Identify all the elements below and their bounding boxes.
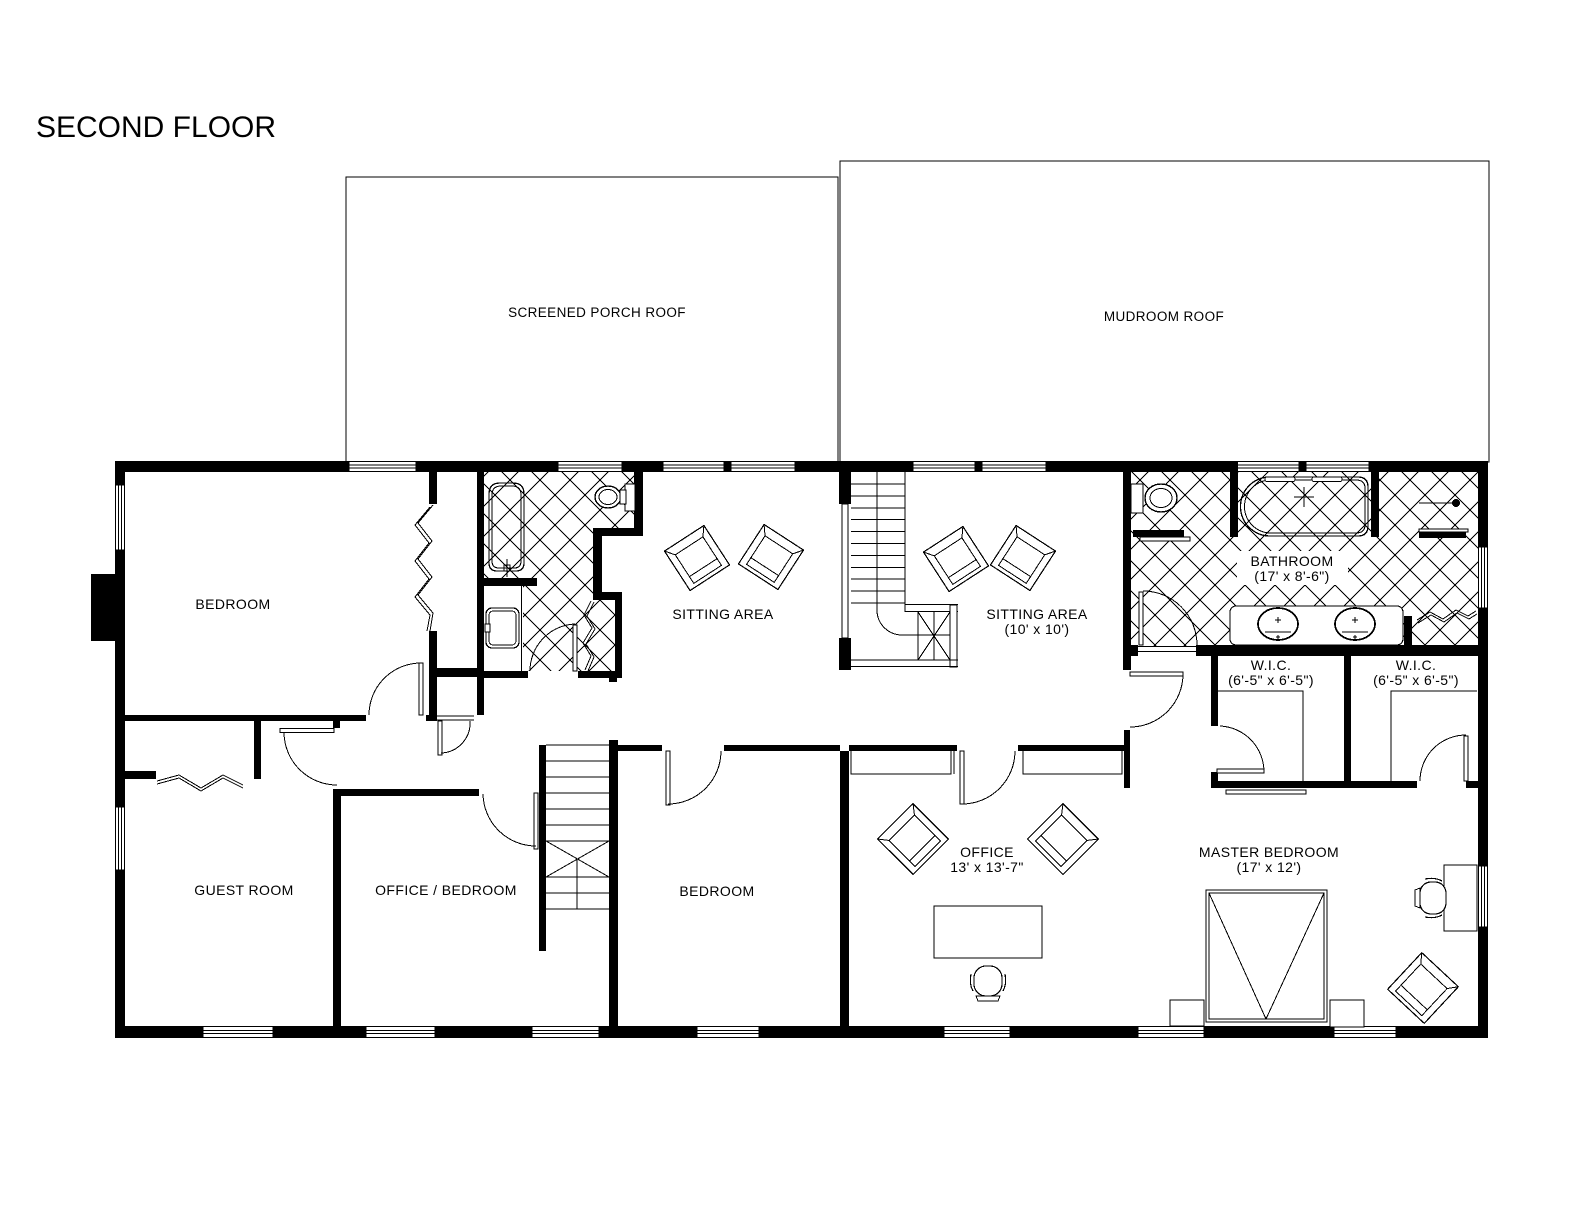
svg-text:SECOND FLOOR: SECOND FLOOR <box>36 111 276 144</box>
svg-text:(6'-5" x 6'-5"): (6'-5" x 6'-5") <box>1373 672 1459 688</box>
svg-text:13' x 13'-7": 13' x 13'-7" <box>950 859 1024 875</box>
svg-text:(6'-5" x 6'-5"): (6'-5" x 6'-5") <box>1228 672 1314 688</box>
svg-text:OFFICE / BEDROOM: OFFICE / BEDROOM <box>375 882 517 898</box>
svg-text:W.I.C.: W.I.C. <box>1251 657 1292 673</box>
svg-text:W.I.C.: W.I.C. <box>1396 657 1437 673</box>
svg-text:MASTER BEDROOM: MASTER BEDROOM <box>1199 844 1339 860</box>
svg-text:SCREENED PORCH ROOF: SCREENED PORCH ROOF <box>508 305 686 320</box>
svg-text:BEDROOM: BEDROOM <box>195 596 270 612</box>
svg-text:GUEST ROOM: GUEST ROOM <box>194 882 293 898</box>
svg-text:BATHROOM: BATHROOM <box>1250 553 1333 569</box>
svg-text:(17' x 8'-6"): (17' x 8'-6") <box>1254 568 1329 584</box>
svg-text:OFFICE: OFFICE <box>960 844 1014 860</box>
svg-text:SITTING AREA: SITTING AREA <box>672 606 774 622</box>
svg-text:(17' x 12'): (17' x 12') <box>1237 859 1302 875</box>
svg-text:BEDROOM: BEDROOM <box>679 883 754 899</box>
svg-text:SITTING AREA: SITTING AREA <box>986 606 1088 622</box>
svg-text:(10' x 10'): (10' x 10') <box>1005 621 1070 637</box>
svg-text:MUDROOM ROOF: MUDROOM ROOF <box>1104 309 1224 324</box>
